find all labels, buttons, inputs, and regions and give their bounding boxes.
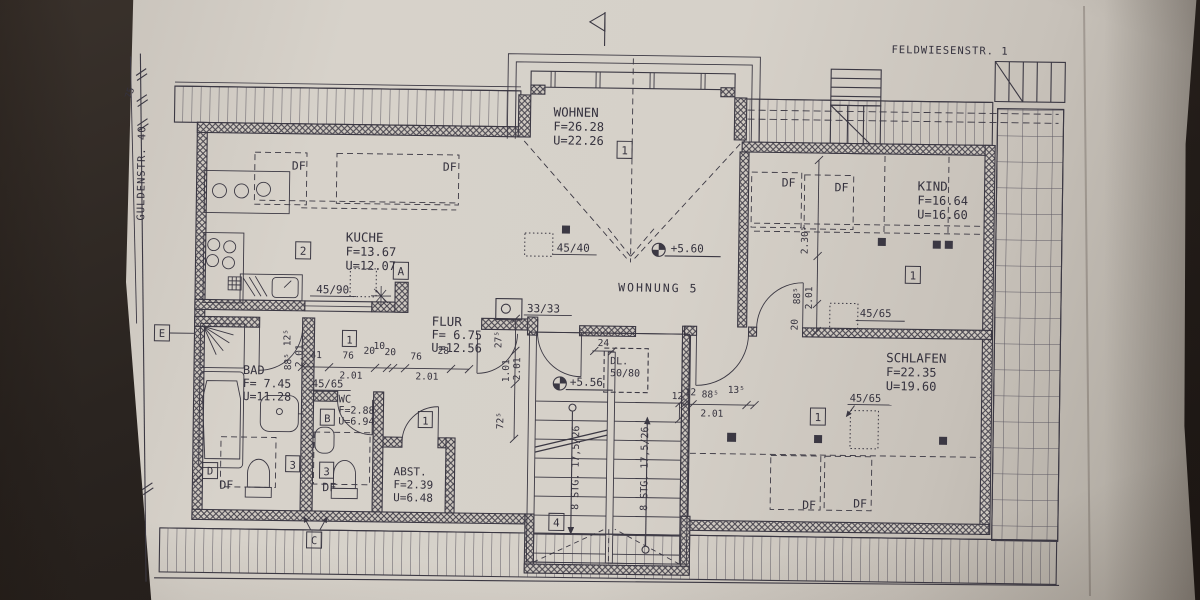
stairwell [526, 332, 689, 564]
ref-d: D [207, 466, 213, 478]
room-abst-perimeter: U=6.48 [393, 491, 433, 505]
room-wc-area: F=2.88 [338, 405, 374, 417]
opening-kitchen-window: 45/90 [316, 283, 349, 296]
dim-bad-door-2: 2.01 [294, 344, 305, 367]
ref-schlafen: 1 [814, 411, 821, 424]
df-label-kind-2: DF [834, 180, 848, 194]
ref-kueche: 2 [300, 245, 307, 258]
room-wc-perimeter: U=6.94 [338, 416, 374, 428]
ref-b: B [324, 413, 330, 425]
wohnen-dormer [507, 54, 760, 143]
level-stair: +5.56 [570, 376, 603, 389]
dim-flur-0: 27⁵ [493, 331, 504, 348]
room-wohnen-perimeter: U=22.26 [553, 133, 604, 148]
stair-treads [533, 351, 682, 564]
dim-chain-5: 76 [410, 351, 422, 362]
dim-schlafen-door-1: 88⁵ [702, 389, 719, 400]
roof-band-right [992, 109, 1064, 542]
room-kueche-area: F=13.67 [346, 244, 397, 259]
dim-chain-1: 76 [342, 350, 354, 361]
ref-flur-door: 1 [346, 334, 352, 346]
dim-stair-top: 24 [598, 338, 610, 349]
dim-kind-1: 88⁵ [792, 287, 803, 304]
roof-band-top-left [174, 82, 521, 127]
dim-schlafen-door-2: 13⁵ [728, 385, 745, 396]
street-dim: 75 [123, 86, 137, 100]
room-kueche-perimeter: U=12.07 [345, 258, 396, 273]
ref-stair-4: 4 [553, 516, 560, 529]
opening-hall-window: 45/40 [557, 241, 590, 254]
stair-door [537, 332, 582, 377]
dl-label: DL. [610, 356, 628, 367]
dim-flur-2: 2.01 [512, 357, 523, 380]
df-label-kueche-2: DF [443, 160, 457, 174]
ref-boxes [152, 135, 923, 557]
dim-bad-door-1: 88⁵ [283, 353, 294, 370]
kitchen-window [305, 301, 372, 312]
room-kueche-name: KUCHE [346, 229, 384, 245]
street-label-top: FELDWIESENSTR. 1 [891, 44, 1008, 58]
opening-roof-window-schlafen: 45/65 [850, 392, 882, 404]
opening-chimney: 33/33 [527, 302, 560, 315]
dim-chain-4: 20 [384, 347, 396, 358]
kitchen-sink [240, 274, 302, 301]
ref-a: A [397, 265, 404, 278]
dim-chain-6: 28 [437, 346, 449, 357]
schlafen-door [696, 333, 749, 386]
ref-abst-door: 1 [422, 416, 428, 428]
room-bad-perimeter: U=11.28 [243, 389, 292, 404]
room-kind-name: KIND [918, 178, 948, 193]
dim-kind-0: 2.30⁵ [800, 225, 811, 254]
df-label-kueche-1: DF [292, 159, 306, 173]
paper-crease [1084, 6, 1090, 596]
room-kind-perimeter: U=16.60 [917, 207, 968, 222]
room-abst-area: F=2.39 [393, 478, 433, 492]
bad-toilet [245, 459, 272, 497]
ref-e: E [159, 328, 165, 340]
stair-flight-right-label: 8 STG. 17,5/26 [639, 426, 651, 510]
wc-basin [315, 427, 334, 453]
scanned-floorplan-photo: FELDWIESENSTR. 1 GULDENSTR. 40 75 WOHNEN… [0, 0, 1200, 600]
dim-chain-total-1: 2.01 [339, 370, 362, 381]
room-schlafen-name: SCHLAFEN [886, 350, 946, 366]
ref-kind: 1 [909, 269, 916, 282]
dim-schlafen-door-0: 12 [685, 387, 697, 398]
street-label-left: GULDENSTR. 40 [135, 125, 148, 220]
shower [200, 323, 245, 368]
unit-label: WOHNUNG 5 [618, 280, 699, 295]
dim-chain-0: 41 [310, 350, 322, 361]
room-kind-area: F=16.64 [917, 193, 968, 208]
dim-stair-side: 12 [672, 391, 684, 402]
level-hall: +5.60 [671, 242, 704, 255]
dim-bad-door-0: 12⁵ [282, 329, 293, 346]
df-label-bad: DF [219, 478, 233, 492]
opening-roof-window-kind: 45/65 [860, 308, 892, 320]
room-abst-name: ABST. [393, 465, 426, 478]
ref-wc-3: 3 [323, 466, 329, 478]
roof-hatch-object-right [995, 61, 1066, 102]
room-schlafen-perimeter: U=19.60 [886, 379, 937, 394]
dim-schlafen-door-3: 2.01 [700, 408, 723, 419]
dim-kind-2: 2.01 [804, 286, 815, 309]
north-flag-icon [590, 12, 605, 46]
room-schlafen-area: F=22.35 [886, 365, 937, 380]
roof-band-bottom [154, 528, 1060, 591]
room-wohnen-name: WOHNEN [554, 104, 599, 120]
df-label-wc: DF [322, 480, 336, 494]
dim-flur-1: 1.01 [501, 359, 512, 382]
df-label-kind-1: DF [782, 176, 796, 190]
dim-kind-3: 20 [790, 319, 801, 331]
bathtub [199, 371, 244, 468]
room-wc-name: WC [339, 393, 352, 405]
df-label-schlafen-1: DF [802, 498, 816, 512]
room-wohnen-area: F=26.28 [553, 119, 604, 134]
dim-flur-3: 72⁵ [495, 412, 506, 429]
dl-size: 50/80 [610, 368, 640, 379]
ref-c: C [311, 535, 317, 547]
df-label-schlafen-2: DF [853, 497, 867, 511]
ref-wohnen: 1 [621, 144, 628, 157]
ref-bad-3: 3 [289, 460, 295, 472]
floorplan-drawing: FELDWIESENSTR. 1 GULDENSTR. 40 75 WOHNEN… [0, 0, 1200, 600]
dim-chain-total-2: 2.01 [415, 371, 438, 382]
stair-flight-left-label: 8 STG. 17,5/26 [570, 425, 582, 509]
